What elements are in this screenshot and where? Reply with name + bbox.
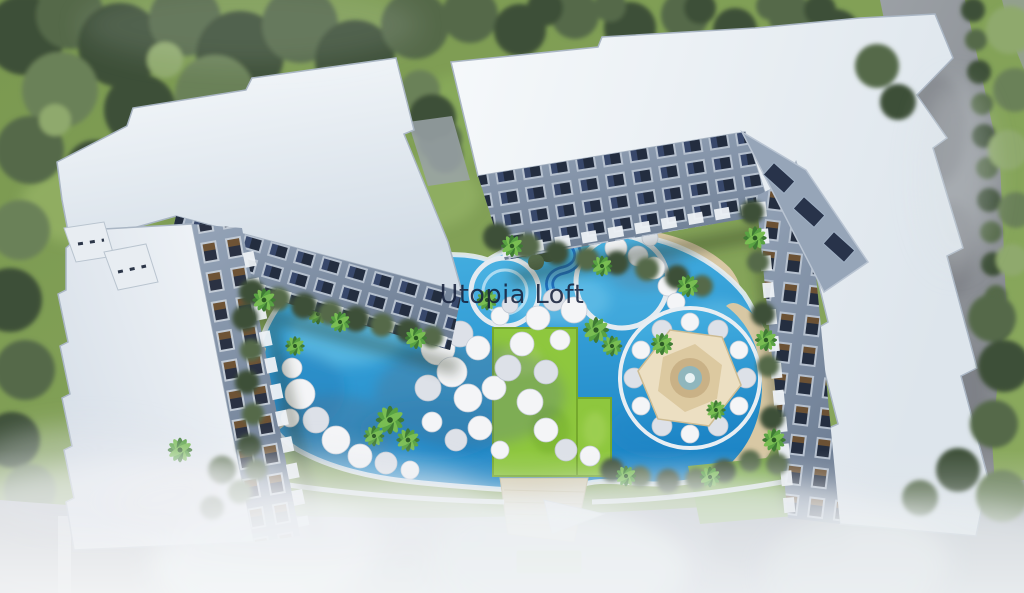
scene-root: Utopia Loft bbox=[0, 0, 1024, 593]
aerial-render: Utopia Loft bbox=[0, 0, 1024, 593]
watermark-text: Utopia Loft bbox=[440, 280, 585, 310]
fountain bbox=[620, 308, 760, 448]
